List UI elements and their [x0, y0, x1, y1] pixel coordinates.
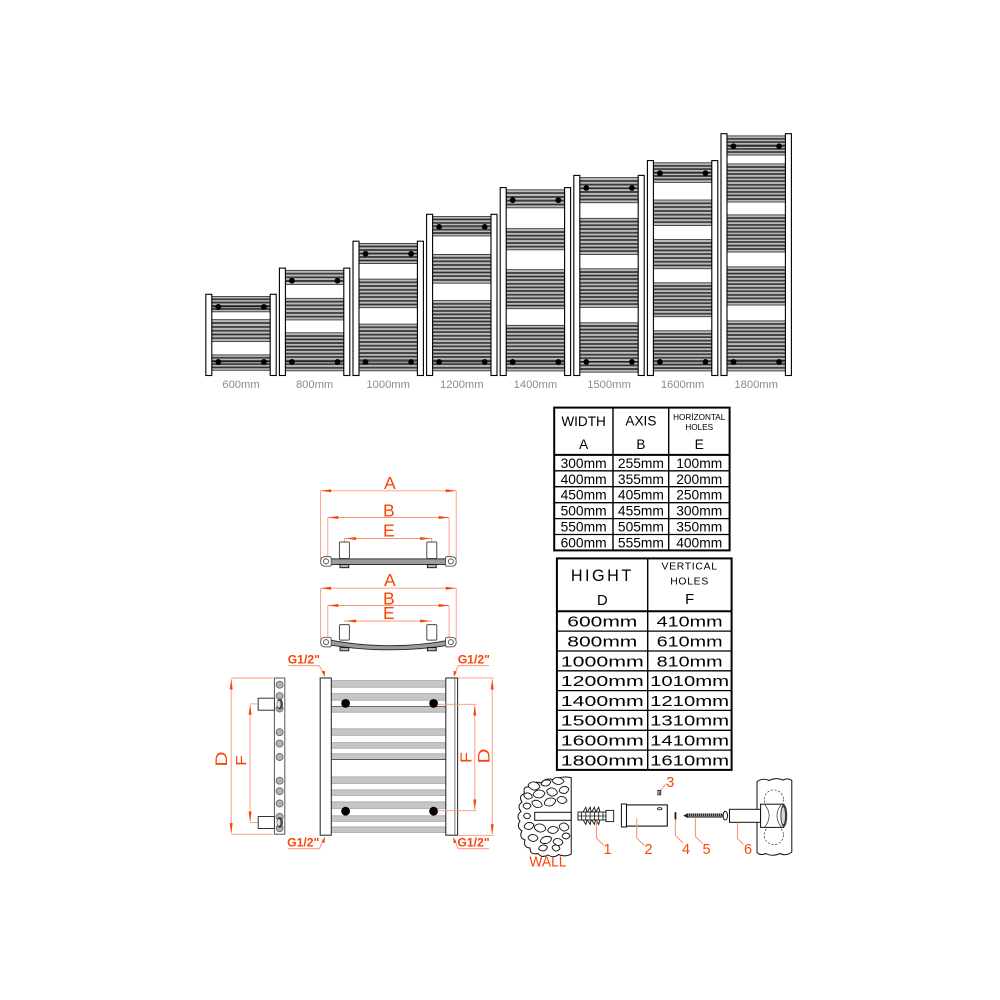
svg-text:1000mm: 1000mm: [561, 654, 644, 670]
svg-text:A: A: [579, 437, 588, 452]
svg-text:1600mm: 1600mm: [661, 379, 705, 391]
svg-text:1600mm: 1600mm: [561, 734, 644, 750]
svg-text:610mm: 610mm: [657, 634, 723, 650]
svg-text:1400mm: 1400mm: [514, 379, 558, 391]
svg-text:4: 4: [682, 842, 690, 858]
svg-text:HORİZONTAL: HORİZONTAL: [673, 412, 726, 422]
svg-text:300mm: 300mm: [676, 504, 722, 519]
svg-text:1800mm: 1800mm: [561, 753, 644, 769]
svg-text:100mm: 100mm: [676, 456, 722, 471]
svg-text:1610mm: 1610mm: [650, 753, 729, 769]
svg-text:1200mm: 1200mm: [440, 379, 484, 391]
svg-text:600mm: 600mm: [222, 379, 259, 391]
svg-text:3: 3: [666, 775, 674, 791]
svg-text:1210mm: 1210mm: [650, 694, 729, 710]
svg-text:HOLES: HOLES: [685, 423, 713, 432]
svg-text:300mm: 300mm: [561, 456, 607, 471]
svg-text:1800mm: 1800mm: [734, 379, 778, 391]
svg-text:D: D: [213, 751, 231, 766]
svg-text:1500mm: 1500mm: [561, 714, 644, 730]
svg-text:550mm: 550mm: [561, 520, 607, 535]
svg-text:600mm: 600mm: [561, 536, 607, 551]
svg-text:600mm: 600mm: [567, 615, 637, 631]
svg-text:D: D: [474, 749, 493, 764]
svg-text:F: F: [458, 752, 475, 763]
svg-text:G1/2": G1/2": [288, 652, 320, 666]
svg-text:410mm: 410mm: [657, 615, 723, 631]
svg-text:E: E: [695, 437, 704, 452]
svg-text:1000mm: 1000mm: [366, 379, 410, 391]
svg-text:400mm: 400mm: [561, 472, 607, 487]
svg-text:405mm: 405mm: [618, 488, 664, 503]
svg-text:555mm: 555mm: [618, 536, 664, 551]
svg-text:455mm: 455mm: [618, 504, 664, 519]
svg-text:1: 1: [603, 842, 611, 858]
svg-text:1410mm: 1410mm: [650, 734, 729, 750]
svg-text:505mm: 505mm: [618, 520, 664, 535]
svg-text:810mm: 810mm: [657, 654, 723, 670]
svg-text:B: B: [636, 437, 645, 452]
svg-text:6: 6: [744, 842, 752, 858]
svg-text:800mm: 800mm: [567, 634, 637, 650]
svg-text:A: A: [384, 570, 396, 590]
svg-text:350mm: 350mm: [676, 520, 722, 535]
svg-text:500mm: 500mm: [561, 504, 607, 519]
svg-text:AXIS: AXIS: [625, 414, 656, 429]
svg-text:G1/2": G1/2": [457, 836, 489, 850]
svg-text:1310mm: 1310mm: [650, 714, 729, 730]
svg-text:250mm: 250mm: [676, 488, 722, 503]
svg-text:A: A: [384, 473, 396, 493]
svg-text:WIDTH: WIDTH: [561, 414, 606, 429]
svg-text:G1/2": G1/2": [287, 836, 319, 850]
svg-text:E: E: [383, 603, 395, 623]
svg-text:2: 2: [644, 842, 652, 858]
svg-text:D: D: [597, 593, 608, 609]
svg-text:1500mm: 1500mm: [587, 379, 631, 391]
svg-text:200mm: 200mm: [676, 472, 722, 487]
svg-text:HIGHT: HIGHT: [571, 567, 634, 585]
svg-text:F: F: [685, 592, 694, 608]
svg-text:1200mm: 1200mm: [561, 674, 644, 690]
svg-text:400mm: 400mm: [676, 536, 722, 551]
svg-text:E: E: [383, 521, 395, 541]
svg-text:1010mm: 1010mm: [650, 674, 729, 690]
svg-text:800mm: 800mm: [296, 379, 333, 391]
svg-text:WALL: WALL: [529, 853, 566, 870]
svg-text:HOLES: HOLES: [670, 577, 709, 588]
svg-text:5: 5: [702, 842, 710, 858]
svg-text:VERTICAL: VERTICAL: [661, 562, 717, 573]
svg-text:F: F: [233, 755, 250, 766]
svg-text:255mm: 255mm: [618, 456, 664, 471]
svg-text:1400mm: 1400mm: [561, 694, 644, 710]
svg-text:G1/2": G1/2": [458, 652, 490, 666]
svg-text:450mm: 450mm: [561, 488, 607, 503]
svg-text:355mm: 355mm: [618, 472, 664, 487]
